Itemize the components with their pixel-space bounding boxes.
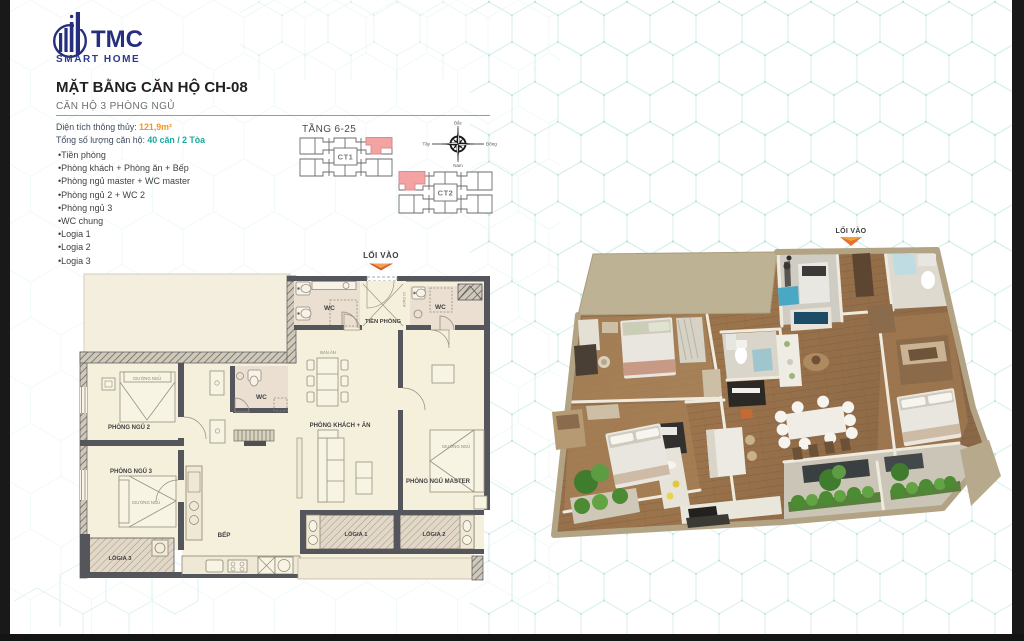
svg-text:Đông: Đông — [486, 142, 497, 147]
svg-text:PHÒNG NGỦ 2: PHÒNG NGỦ 2 — [108, 423, 151, 431]
svg-text:Bắc: Bắc — [454, 120, 463, 126]
svg-text:TIỀN PHÒNG: TIỀN PHÒNG — [365, 317, 402, 325]
svg-text:GIƯỜNG NGỦ: GIƯỜNG NGỦ — [133, 376, 161, 381]
svg-text:24 GẠCH: 24 GẠCH — [402, 292, 406, 308]
svg-text:WC: WC — [256, 394, 267, 401]
svg-text:Nam: Nam — [453, 163, 463, 168]
svg-text:PHÒNG KHÁCH + ĂN: PHÒNG KHÁCH + ĂN — [310, 421, 371, 429]
svg-text:LỐI VÀO: LỐI VÀO — [363, 250, 399, 260]
svg-text:CT1: CT1 — [338, 153, 354, 162]
svg-text:GIƯỜNG NGỦ: GIƯỜNG NGỦ — [442, 444, 470, 449]
svg-text:PHÒNG NGỦ MASTER: PHÒNG NGỦ MASTER — [406, 477, 471, 485]
svg-text:LÔGIA 2: LÔGIA 2 — [423, 530, 446, 538]
svg-text:CT2: CT2 — [438, 189, 454, 198]
svg-text:PHÒNG NGỦ 3: PHÒNG NGỦ 3 — [110, 467, 153, 475]
svg-text:BẾP: BẾP — [218, 532, 231, 539]
svg-text:Tây: Tây — [422, 142, 430, 147]
svg-text:BÀN ĂN: BÀN ĂN — [320, 350, 336, 355]
svg-text:LÔGIA 3: LÔGIA 3 — [109, 554, 133, 562]
svg-text:WC: WC — [324, 305, 335, 312]
svg-text:WC: WC — [435, 304, 446, 311]
svg-text:LỐI VÀO: LỐI VÀO — [836, 225, 867, 235]
svg-text:LÔGIA 1: LÔGIA 1 — [345, 530, 369, 538]
